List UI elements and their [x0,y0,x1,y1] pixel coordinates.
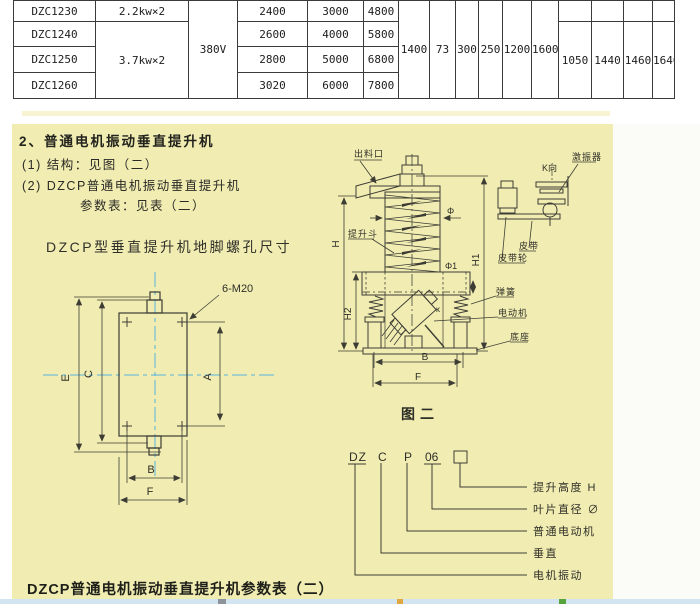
figure2-caption: 图二 [401,406,439,422]
page-margin [613,124,700,599]
phi1-label: Φ1 [445,261,457,271]
cell-voltage: 380V [189,1,238,99]
k-view-label: K向 [542,162,557,173]
code-square-box [454,451,467,463]
table-row: DZC1230 2.2kw×2 380V 2400 3000 4800 1400… [14,1,675,22]
centerlines [43,272,277,480]
strip-green-icon[interactable] [559,599,566,604]
base-plate [363,348,477,354]
cell-span: 300 [456,1,479,99]
spec-table-continued: DZC1230 2.2kw×2 380V 2400 3000 4800 1400… [13,0,675,99]
legend-motor-vibration: 电机振动 [533,568,583,580]
scan-edge-strip [22,111,610,116]
cell-empty [624,1,653,22]
left-drawing-title: DZCP型垂直提升机地脚螺孔尺寸 [46,237,292,257]
cell-model: DZC1240 [14,22,96,47]
cell-power: 2.2kw×2 [96,1,189,22]
cell-empty [559,1,592,22]
cell-span: 73 [430,1,456,99]
code-part-c: C [378,450,387,464]
dim-f-label: F [147,486,154,498]
cell-model: DZC1250 [14,47,96,73]
cell-span: 1050 [559,22,592,99]
legend-ordinary-motor: 普通电动机 [533,524,596,538]
cell-value: 7800 [364,73,399,99]
bucket-label: 提升斗 [348,229,378,239]
spring-left [369,296,383,317]
dim-b-label: B [422,352,429,363]
spring-label: 弹簧 [496,286,516,297]
dim-c-label: C [83,370,95,378]
base-label: 底座 [510,331,530,342]
cell-span: 250 [479,1,503,99]
kappa-label: κ [436,305,441,314]
cell-value: 2400 [238,1,308,22]
section-item-1: (1) 结构：见图（二） [22,154,159,173]
cell-value: 5000 [308,47,364,73]
cell-span: 1460 [624,22,653,99]
code-connector-lines [348,451,527,575]
cell-span: 1600 [532,1,559,99]
section-item-2b: 参数表：见表（二） [80,195,206,214]
dim-h1-label: H1 [471,253,482,266]
dim-h2-label: H2 [343,307,354,320]
strip-orange-icon[interactable] [397,599,403,604]
fig2-dimension-lines [338,160,596,387]
cell-span: 1200 [503,1,532,99]
bottom-table-title: DZCP普通电机振动垂直提升机参数表（二） [27,578,334,599]
cell-empty [653,1,675,22]
cell-span: 1440 [592,22,624,99]
cell-power: 3.7kw×2 [96,22,189,99]
spring-right [454,296,468,317]
bottom-cutoff-strip [0,599,700,604]
motor-label: 电动机 [498,307,528,318]
phi-label: Φ [447,206,454,216]
vibrator-label: 激振器 [572,151,602,162]
code-part-p: P [404,450,412,464]
code-part-dz: DZ [349,450,367,464]
legend-lift-height: 提升高度 H [533,480,597,494]
model-code-diagram: DZ C P 06 提升高度 H 叶片直径 ∅ 普通电动机 垂直 电机振动 [345,448,605,580]
dim-h-label: H [331,240,342,247]
cell-value: 2800 [238,47,308,73]
cell-value: 3000 [308,1,364,22]
base-hopper [362,272,470,295]
pulley-circle [543,203,557,217]
cell-value: 2600 [238,22,308,47]
scanned-catalog-page: DZC1230 2.2kw×2 380V 2400 3000 4800 1400… [0,0,700,604]
tilted-motor [387,285,442,338]
strip-gray-icon[interactable] [218,599,226,604]
anchor-bolt-drawing: 6-M20 E C A B F [30,265,320,510]
code-part-06: 06 [425,450,439,464]
cell-value: 5800 [364,22,399,47]
cell-span: 1640 [653,22,675,99]
dim-e-label: E [60,374,72,381]
bolt-spec-label: 6-M20 [222,283,253,295]
legend-blade-diameter: 叶片直径 ∅ [533,502,600,516]
dim-a-label: A [202,373,214,381]
cell-value: 6800 [364,47,399,73]
cell-empty [592,1,624,22]
figure2-drawing: 出料口 提升斗 Φ Φ1 κ H H2 H1 B F 弹簧 电动机 底座 K向 … [330,140,613,425]
cell-value: 3020 [238,73,308,99]
motor-shaft [425,325,444,347]
cell-span: 1400 [399,1,430,99]
dim-f-label: F [415,372,421,383]
cell-model: DZC1260 [14,73,96,99]
dim-b-label: B [147,464,154,476]
legend-vertical: 垂直 [533,546,558,560]
table-row: DZC1240 3.7kw×2 2600 4000 5800 1050 1440… [14,22,675,47]
outlet-label: 出料口 [354,148,384,159]
cell-value: 6000 [308,73,364,99]
section-item-2: (2) DZCP普通电机振动垂直提升机 [22,175,241,194]
cell-value: 4000 [308,22,364,47]
motor-hatch [382,320,406,345]
pulley-label: 皮带轮 [498,252,528,263]
cell-model: DZC1230 [14,1,96,22]
belt-label: 皮带 [519,240,539,251]
section-heading: 2、普通电机振动垂直提升机 [19,130,215,150]
cell-value: 4800 [364,1,399,22]
